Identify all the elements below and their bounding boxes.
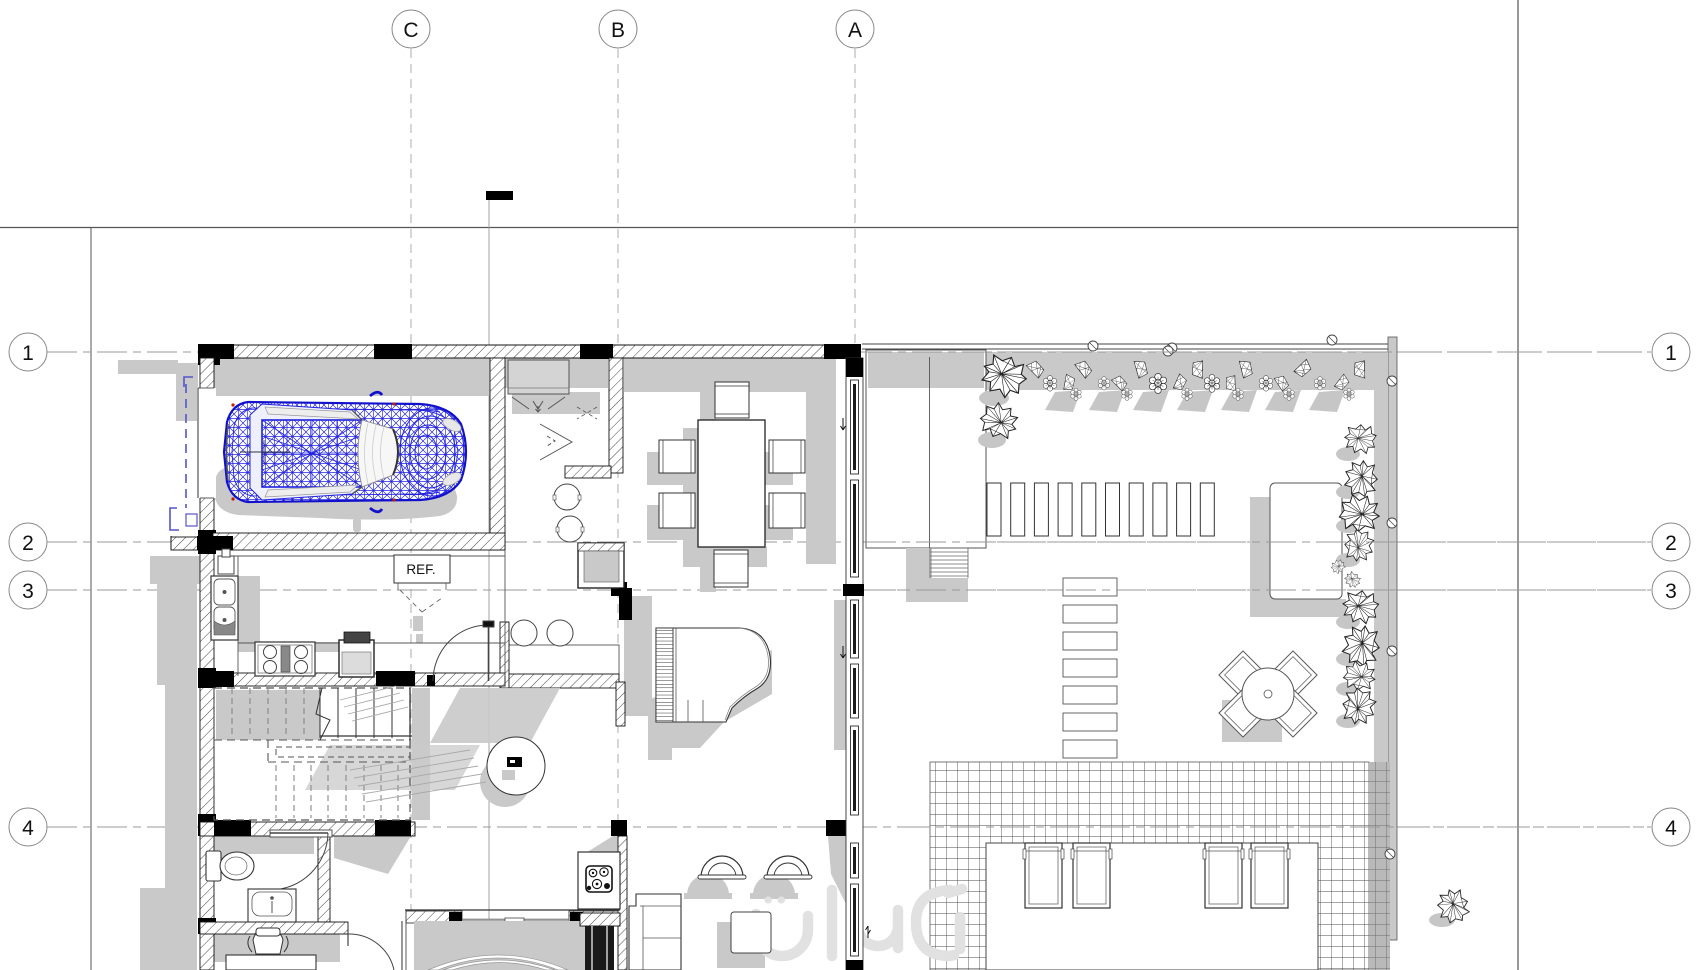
svg-text:3: 3 [1665,580,1677,603]
svg-text:2: 2 [22,532,34,555]
svg-text:C: C [403,19,418,42]
svg-text:2: 2 [1665,532,1677,555]
svg-text:4: 4 [1665,817,1677,840]
svg-text:REF.: REF. [406,562,435,577]
svg-text:4: 4 [22,817,34,840]
svg-text:1: 1 [22,342,34,365]
svg-text:A: A [848,19,862,42]
svg-text:1: 1 [1665,342,1677,365]
svg-text:B: B [611,19,625,42]
svg-text:3: 3 [22,580,34,603]
